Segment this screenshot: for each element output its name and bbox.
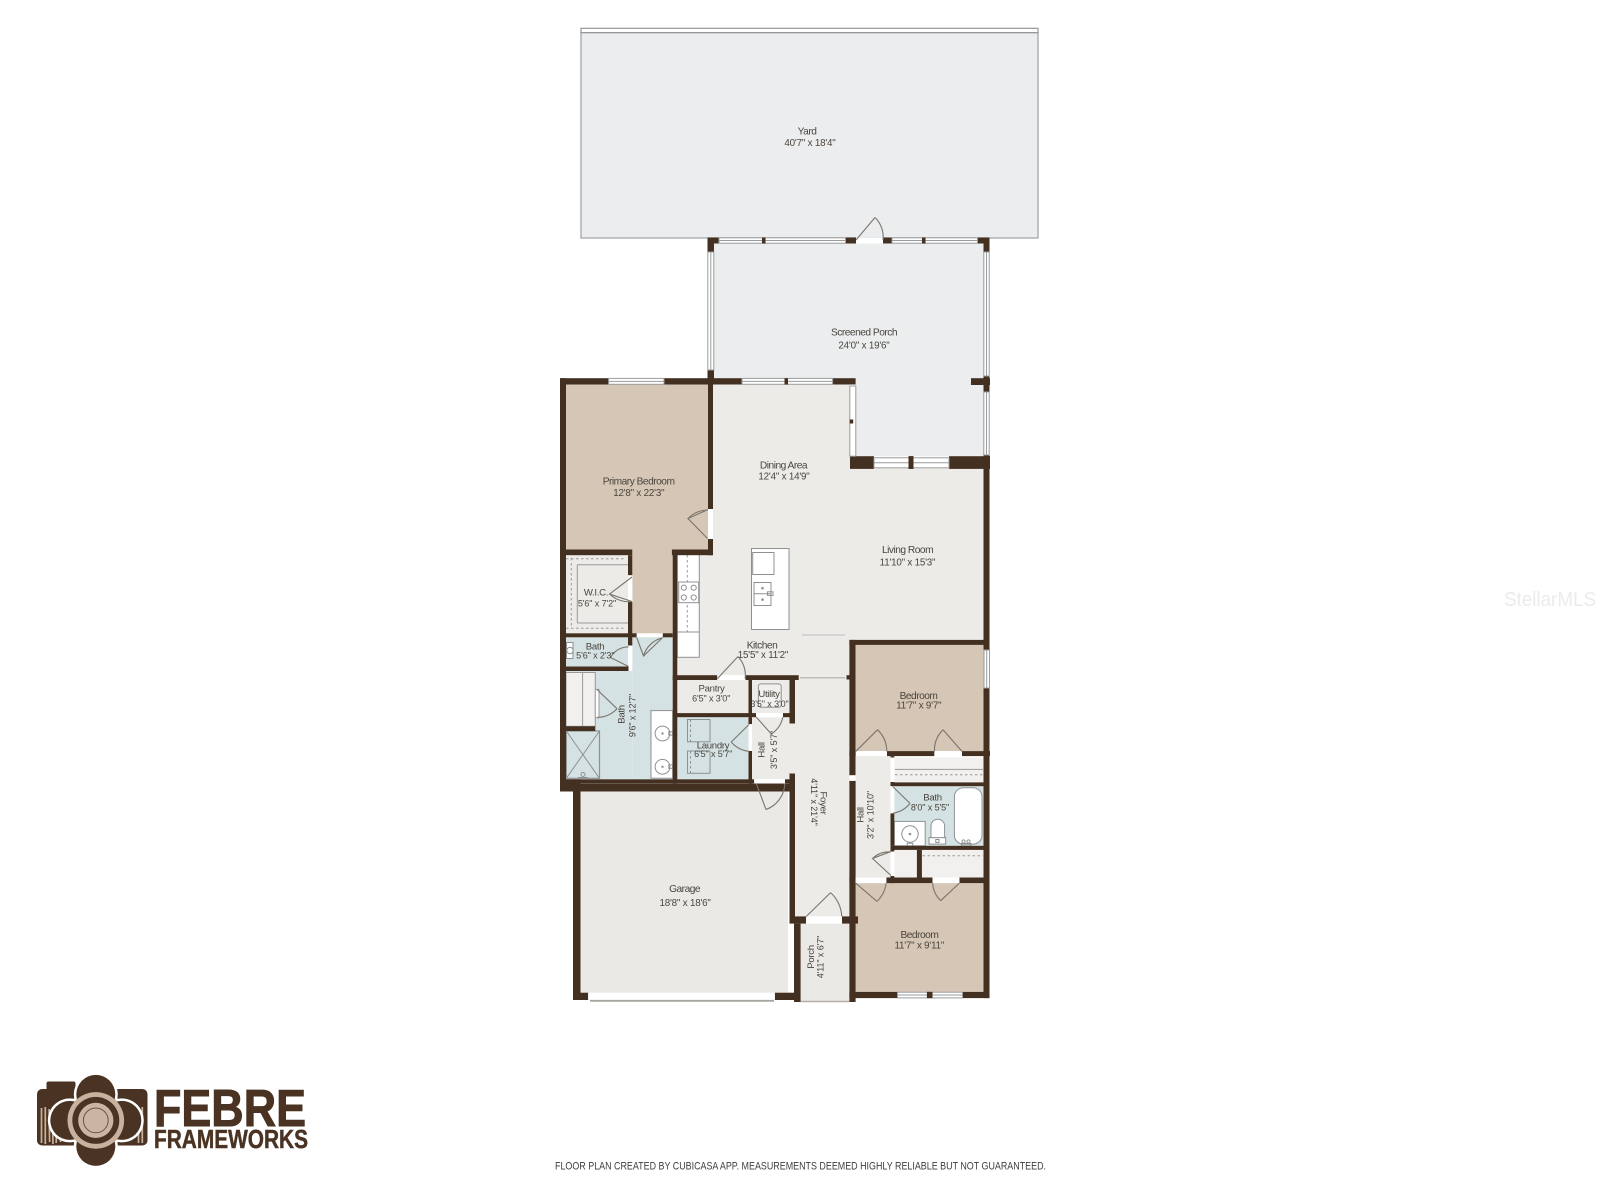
svg-text:3'2" x 10'10": 3'2" x 10'10" (866, 791, 876, 839)
svg-text:8'0" x 5'5": 8'0" x 5'5" (911, 802, 949, 812)
svg-text:11'7" x 9'7": 11'7" x 9'7" (896, 701, 942, 712)
svg-text:12'4" x 14'9": 12'4" x 14'9" (758, 472, 810, 483)
svg-text:15'5" x 11'2": 15'5" x 11'2" (738, 650, 789, 661)
svg-text:Dining Area: Dining Area (760, 460, 808, 471)
svg-text:Primary Bedroom: Primary Bedroom (603, 477, 675, 488)
svg-text:Hall: Hall (757, 742, 768, 757)
svg-text:3'5" x 5'7": 3'5" x 5'7" (769, 731, 779, 769)
svg-text:24'0" x 19'6": 24'0" x 19'6" (838, 341, 890, 352)
svg-text:W.I.C.: W.I.C. (584, 587, 608, 598)
svg-text:Yard: Yard (798, 127, 818, 138)
svg-text:Bath: Bath (617, 705, 628, 724)
svg-text:FLOOR PLAN CREATED BY CUBICASA: FLOOR PLAN CREATED BY CUBICASA APP. MEAS… (555, 1161, 1046, 1173)
svg-text:4'11" x 6'7": 4'11" x 6'7" (816, 936, 826, 979)
svg-text:FRAMEWORKS: FRAMEWORKS (154, 1124, 308, 1154)
svg-text:12'8" x 22'3": 12'8" x 22'3" (613, 488, 665, 499)
svg-text:4'11" x 21'4": 4'11" x 21'4" (809, 778, 819, 825)
svg-text:Garage: Garage (669, 884, 701, 895)
svg-text:18'8" x 18'6": 18'8" x 18'6" (660, 898, 712, 909)
svg-text:11'10" x 15'3": 11'10" x 15'3" (880, 557, 936, 568)
svg-text:40'7" x 18'4": 40'7" x 18'4" (784, 138, 836, 149)
svg-text:11'7" x 9'11": 11'7" x 9'11" (894, 941, 944, 952)
svg-text:9'6" x 12'7": 9'6" x 12'7" (628, 694, 638, 737)
svg-text:5'6" x 7'2": 5'6" x 7'2" (578, 599, 616, 609)
svg-text:Screened Porch: Screened Porch (831, 328, 897, 339)
svg-text:5'6" x 2'3": 5'6" x 2'3" (576, 651, 614, 661)
svg-text:3'5" x 3'0": 3'5" x 3'0" (750, 699, 788, 709)
svg-text:6'5" x 3'0": 6'5" x 3'0" (692, 694, 730, 704)
svg-text:Living Room: Living Room (882, 545, 933, 556)
svg-text:StellarMLS: StellarMLS (1504, 589, 1596, 611)
svg-text:Bedroom: Bedroom (900, 930, 938, 941)
svg-text:6'5" x 5'7": 6'5" x 5'7" (694, 749, 732, 759)
